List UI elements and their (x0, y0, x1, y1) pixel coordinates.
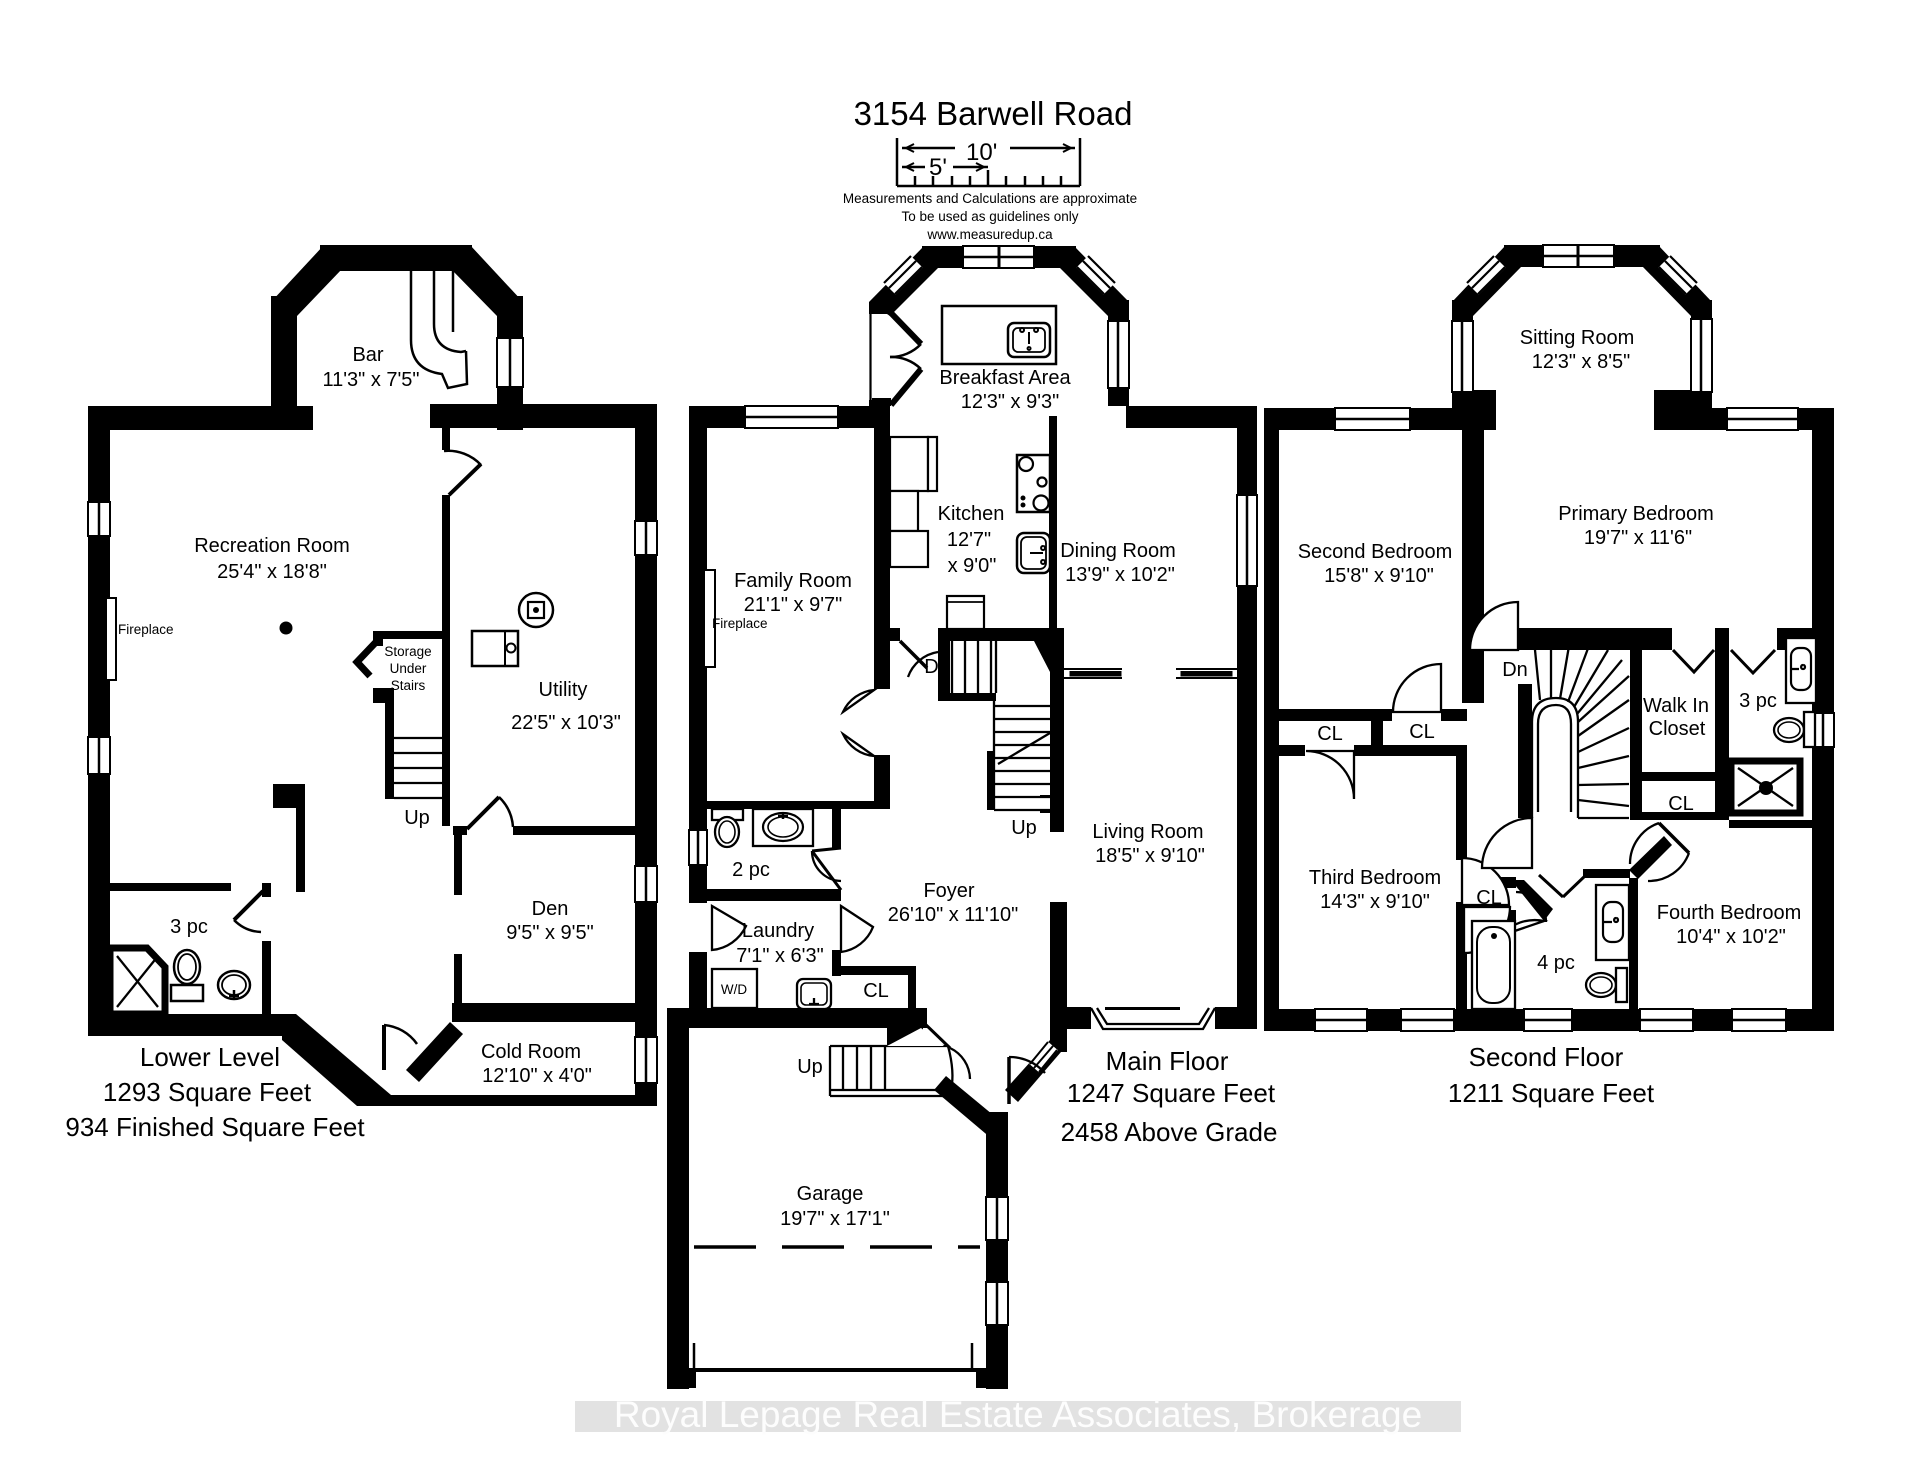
svg-text:Measurements and Calculations: Measurements and Calculations are approx… (843, 191, 1137, 206)
svg-text:934 Finished Square Feet: 934 Finished Square Feet (65, 1112, 365, 1142)
svg-text:Under: Under (390, 661, 427, 676)
svg-text:Sitting Room: Sitting Room (1520, 327, 1635, 349)
svg-text:x 9'0": x 9'0" (948, 555, 997, 577)
svg-text:Lower Level: Lower Level (140, 1042, 280, 1072)
svg-text:1293 Square Feet: 1293 Square Feet (103, 1077, 312, 1107)
svg-text:Recreation Room: Recreation Room (194, 535, 350, 557)
svg-text:Second Bedroom: Second Bedroom (1298, 541, 1453, 563)
svg-text:Stairs: Stairs (391, 678, 426, 693)
svg-text:Up: Up (797, 1056, 823, 1078)
svg-text:Family Room: Family Room (734, 570, 852, 592)
svg-text:10'4" x 10'2": 10'4" x 10'2" (1676, 926, 1786, 948)
svg-text:3 pc: 3 pc (170, 916, 208, 938)
svg-text:Fireplace: Fireplace (118, 622, 174, 637)
svg-text:Den: Den (532, 898, 569, 920)
svg-text:2458 Above Grade: 2458 Above Grade (1061, 1117, 1278, 1147)
svg-text:1211 Square Feet: 1211 Square Feet (1448, 1078, 1655, 1108)
svg-text:7'1" x 6'3": 7'1" x 6'3" (736, 945, 823, 967)
svg-text:Closet: Closet (1649, 718, 1706, 740)
svg-text:5': 5' (929, 154, 947, 181)
svg-text:12'3" x 8'5": 12'3" x 8'5" (1532, 351, 1631, 373)
svg-text:12'7": 12'7" (947, 529, 991, 551)
svg-text:Cold Room: Cold Room (481, 1041, 581, 1063)
svg-text:Laundry: Laundry (742, 920, 814, 942)
svg-text:Dn: Dn (1502, 659, 1528, 681)
svg-text:19'7" x 17'1": 19'7" x 17'1" (780, 1208, 890, 1230)
svg-text:10': 10' (966, 139, 997, 166)
svg-text:Bar: Bar (352, 344, 383, 366)
svg-text:Primary Bedroom: Primary Bedroom (1558, 503, 1714, 525)
svg-text:CL: CL (1668, 793, 1694, 815)
svg-text:Garage: Garage (797, 1183, 864, 1205)
svg-text:22'5" x 10'3": 22'5" x 10'3" (511, 712, 621, 734)
svg-text:W/D: W/D (721, 982, 747, 997)
svg-text:CL: CL (1409, 721, 1435, 743)
svg-text:CL: CL (1476, 887, 1502, 909)
svg-text:Dining Room: Dining Room (1060, 540, 1176, 562)
svg-text:15'8" x 9'10": 15'8" x 9'10" (1324, 565, 1434, 587)
svg-text:To be used as guidelines only: To be used as guidelines only (901, 209, 1078, 224)
svg-text:Up: Up (404, 807, 430, 829)
svg-text:Dn: Dn (924, 656, 950, 678)
svg-text:Living Room: Living Room (1092, 821, 1203, 843)
svg-text:Fireplace: Fireplace (712, 616, 768, 631)
svg-text:3 pc: 3 pc (1739, 690, 1777, 712)
svg-text:Kitchen: Kitchen (938, 503, 1005, 525)
svg-text:Breakfast Area: Breakfast Area (939, 367, 1071, 389)
svg-text:26'10" x 11'10": 26'10" x 11'10" (888, 904, 1018, 926)
svg-text:9'5" x 9'5": 9'5" x 9'5" (506, 922, 593, 944)
svg-text:Foyer: Foyer (923, 880, 974, 902)
svg-text:14'3" x 9'10": 14'3" x 9'10" (1320, 891, 1430, 913)
svg-text:Third Bedroom: Third Bedroom (1309, 867, 1441, 889)
svg-text:Fourth Bedroom: Fourth Bedroom (1657, 902, 1802, 924)
svg-text:Storage: Storage (384, 644, 431, 659)
svg-text:2 pc: 2 pc (732, 859, 770, 881)
svg-text:Utility: Utility (539, 679, 588, 701)
svg-text:Royal Lepage Real Estate Assoc: Royal Lepage Real Estate Associates, Bro… (614, 1394, 1422, 1435)
svg-text:25'4" x 18'8": 25'4" x 18'8" (217, 561, 327, 583)
svg-text:CL: CL (863, 980, 889, 1002)
svg-text:11'3" x 7'5": 11'3" x 7'5" (322, 369, 419, 391)
svg-text:18'5" x 9'10": 18'5" x 9'10" (1095, 845, 1205, 867)
svg-text:4 pc: 4 pc (1537, 952, 1575, 974)
svg-text:19'7" x 11'6": 19'7" x 11'6" (1584, 527, 1692, 549)
svg-text:12'3" x 9'3": 12'3" x 9'3" (961, 391, 1060, 413)
svg-text:Walk In: Walk In (1643, 695, 1709, 717)
svg-text:12'10" x 4'0": 12'10" x 4'0" (482, 1065, 592, 1087)
svg-text:www.measuredup.ca: www.measuredup.ca (926, 227, 1053, 242)
svg-text:13'9" x 10'2": 13'9" x 10'2" (1065, 564, 1175, 586)
svg-text:CL: CL (1317, 723, 1343, 745)
svg-text:1247 Square Feet: 1247 Square Feet (1067, 1078, 1276, 1108)
svg-text:Up: Up (1011, 817, 1037, 839)
svg-text:Second Floor: Second Floor (1469, 1042, 1624, 1072)
svg-text:3154 Barwell Road: 3154 Barwell Road (854, 95, 1133, 132)
svg-text:21'1" x 9'7": 21'1" x 9'7" (744, 594, 843, 616)
svg-text:Main Floor: Main Floor (1106, 1046, 1229, 1076)
